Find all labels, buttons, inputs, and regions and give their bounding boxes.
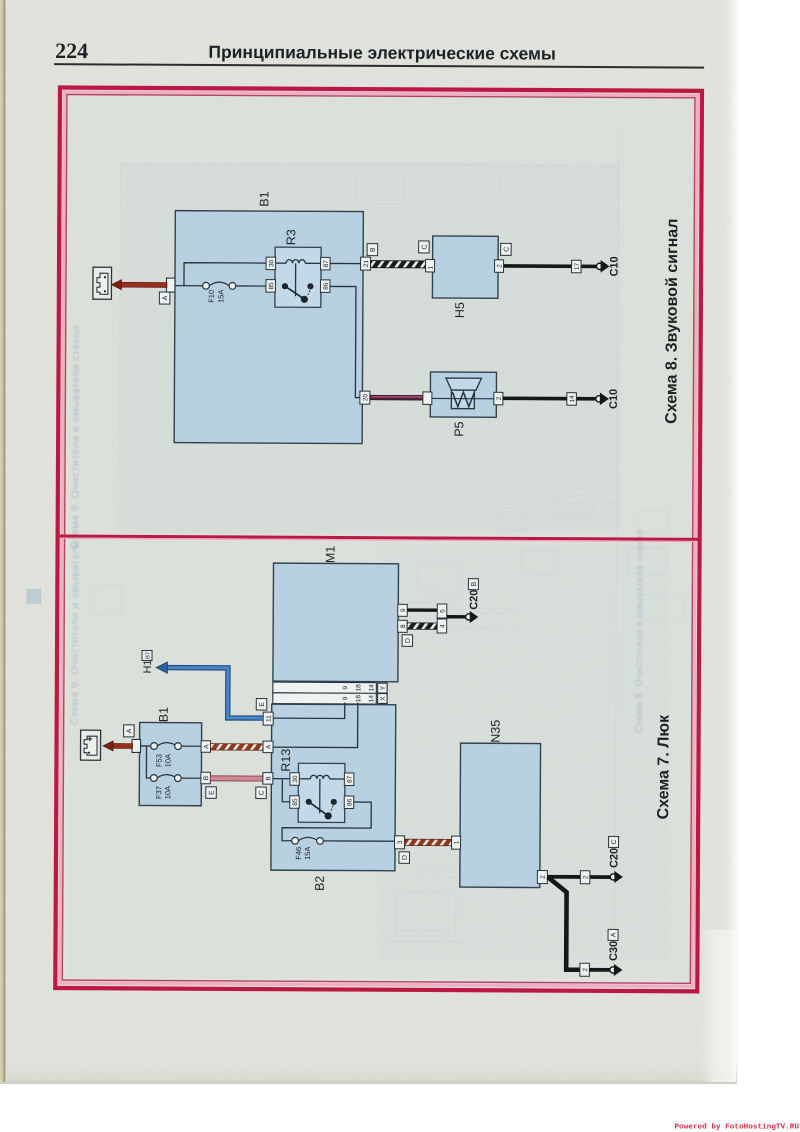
svg-text:R3: R3: [284, 229, 298, 245]
svg-text:C30: C30: [608, 941, 620, 961]
svg-text:B: B: [265, 776, 272, 780]
svg-text:Принципиальные электрические с: Принципиальные электрические схемы: [208, 42, 556, 64]
svg-text:30: 30: [268, 259, 275, 267]
svg-text:9: 9: [342, 686, 349, 690]
svg-text:N35: N35: [489, 720, 503, 743]
svg-text:Powered by FotoHostingTV.RU: Powered by FotoHostingTV.RU: [674, 1124, 799, 1132]
svg-text:F37: F37: [154, 786, 163, 799]
svg-text:1: 1: [454, 840, 461, 844]
svg-text:M1: M1: [324, 546, 338, 563]
svg-text:Схема 9. Очистители и омывател: Схема 9. Очистители и омыватели: [69, 541, 82, 726]
svg-text:Схема 7. Люк: Схема 7. Люк: [655, 714, 673, 819]
svg-text:B2: B2: [313, 876, 327, 891]
svg-text:87: 87: [323, 260, 330, 268]
svg-text:10A: 10A: [163, 754, 172, 767]
svg-text:3: 3: [397, 840, 404, 844]
svg-text:21: 21: [363, 260, 370, 268]
svg-text:C: C: [611, 839, 618, 844]
svg-text:14: 14: [368, 684, 375, 692]
svg-text:87: 87: [347, 775, 354, 783]
svg-text:10A: 10A: [163, 786, 172, 799]
svg-text:14: 14: [368, 695, 375, 703]
svg-text:Схема 8. Очистители и омывател: Схема 8. Очистители и омыватели стекол: [634, 529, 646, 733]
svg-text:D: D: [402, 855, 409, 860]
svg-text:86: 86: [347, 798, 354, 806]
svg-text:11: 11: [266, 715, 273, 722]
svg-text:H1: H1: [142, 659, 154, 673]
svg-text:D: D: [405, 638, 412, 643]
svg-text:Схема 8. Звуковой сигнал: Схема 8. Звуковой сигнал: [663, 219, 681, 424]
svg-text:Y: Y: [380, 685, 387, 690]
svg-text:4: 4: [439, 624, 446, 628]
svg-text:17: 17: [574, 263, 581, 271]
svg-text:C: C: [503, 247, 510, 252]
svg-text:H5: H5: [453, 302, 467, 318]
svg-text:C20: C20: [468, 590, 480, 610]
svg-text:B1: B1: [157, 707, 171, 722]
svg-text:E: E: [259, 702, 266, 707]
svg-text:F10: F10: [207, 290, 216, 303]
svg-text:C: C: [421, 244, 428, 249]
svg-text:2: 2: [540, 875, 547, 879]
svg-text:B: B: [471, 582, 478, 587]
svg-text:15A: 15A: [303, 847, 312, 860]
svg-text:A: A: [266, 744, 273, 749]
svg-text:30: 30: [292, 775, 299, 783]
svg-text:C: C: [259, 790, 266, 795]
svg-text:X: X: [380, 696, 387, 701]
svg-text:2: 2: [582, 968, 589, 972]
svg-text:C10: C10: [609, 256, 621, 276]
svg-text:Схема 9. Очистители и омывател: Схема 9. Очистители и омыватели стекол: [69, 325, 82, 549]
svg-text:E: E: [209, 790, 216, 795]
svg-text:2: 2: [583, 875, 590, 879]
svg-text:15A: 15A: [216, 290, 225, 303]
svg-text:18: 18: [355, 695, 362, 703]
svg-text:F46: F46: [294, 847, 303, 860]
svg-text:18: 18: [355, 684, 362, 692]
svg-text:B: B: [203, 775, 210, 780]
svg-text:9: 9: [400, 608, 407, 612]
svg-text:A: A: [203, 744, 210, 749]
svg-text:85: 85: [268, 282, 275, 290]
svg-text:1: 1: [428, 266, 435, 270]
svg-text:B7: B7: [146, 652, 152, 659]
svg-text:14: 14: [569, 395, 576, 403]
svg-text:2: 2: [496, 396, 503, 400]
svg-text:9: 9: [342, 696, 349, 700]
svg-text:B1: B1: [257, 191, 271, 206]
svg-text:5: 5: [440, 609, 447, 613]
svg-text:85: 85: [292, 798, 299, 806]
svg-text:86: 86: [323, 282, 330, 290]
svg-text:B: B: [370, 247, 377, 252]
svg-text:A: A: [611, 932, 618, 937]
svg-text:2: 2: [497, 264, 504, 268]
svg-text:R13: R13: [279, 749, 293, 772]
svg-text:C10: C10: [608, 389, 620, 409]
svg-text:A: A: [162, 295, 169, 300]
svg-text:224: 224: [55, 38, 88, 63]
svg-text:A: A: [126, 728, 133, 733]
svg-text:20: 20: [362, 394, 369, 402]
svg-text:P5: P5: [452, 421, 466, 436]
svg-text:8: 8: [400, 624, 407, 628]
svg-text:F53: F53: [154, 754, 163, 767]
svg-text:C20: C20: [608, 848, 620, 868]
